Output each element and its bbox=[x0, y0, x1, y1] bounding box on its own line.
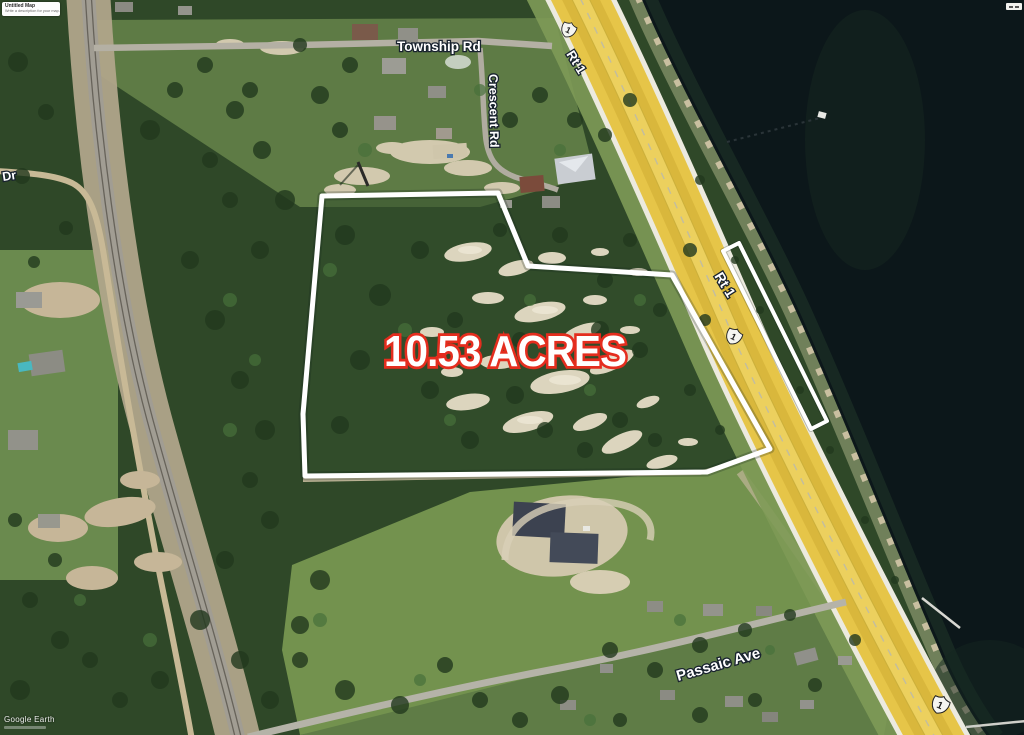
dr-label: Dr bbox=[1, 168, 17, 184]
map-canvas: Township Rd Crescent Rd Rt 1 Rt 1 Passai… bbox=[0, 0, 1024, 735]
township-rd-label: Township Rd bbox=[397, 39, 481, 54]
chip-glyph bbox=[1015, 6, 1019, 8]
google-earth-watermark: Google Earth bbox=[4, 715, 55, 724]
top-right-chip[interactable] bbox=[1006, 3, 1022, 10]
satellite-map-view[interactable]: Township Rd Crescent Rd Rt 1 Rt 1 Passai… bbox=[0, 0, 1024, 735]
untitled-map-card[interactable]: Untitled Map Write a description for you… bbox=[2, 2, 60, 16]
attribution-bar bbox=[4, 726, 46, 729]
map-card-subtitle: Write a description for your map. bbox=[5, 9, 57, 14]
chip-glyph bbox=[1009, 6, 1013, 8]
watermark: Google Earth bbox=[4, 715, 55, 729]
acreage-label: 10.53 ACRES bbox=[384, 327, 626, 376]
crescent-rd-label: Crescent Rd bbox=[486, 74, 501, 148]
